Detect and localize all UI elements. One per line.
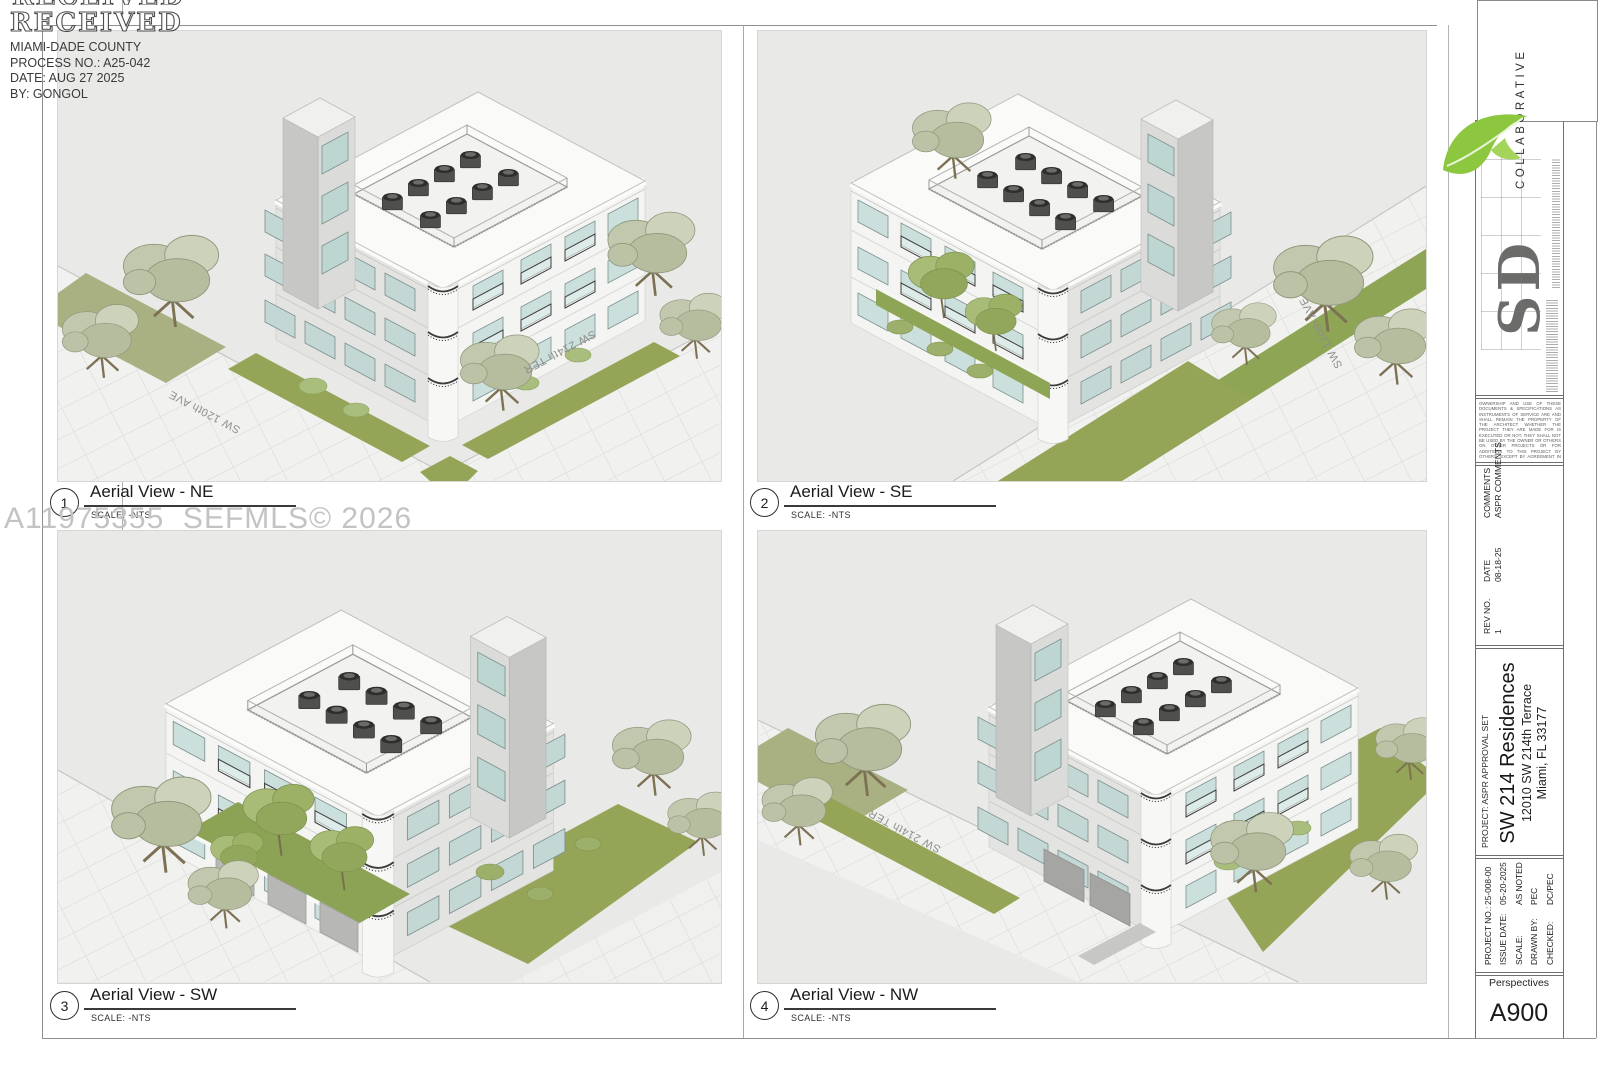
view-number-badge: 4 <box>750 991 779 1020</box>
architect-fine-print <box>1546 300 1558 392</box>
mls-watermark: A11975355 SEFMLS© 2026 <box>4 502 412 536</box>
frame-line-mid <box>743 25 744 1038</box>
info-value: 05-20-2025 <box>1496 859 1511 905</box>
frame-line-top <box>42 25 1437 26</box>
view-scale-text: SCALE: -NTS <box>791 1013 996 1023</box>
stamp-line: BY: GONGOL <box>10 87 183 103</box>
rev-comments-value: ASPR COMMENTS <box>1493 442 1503 518</box>
drawing-sheet: SW 120th AVE SW 214th TER <box>0 0 1600 1066</box>
info-label: PROJECT NO.: <box>1481 905 1496 965</box>
rev-date-header: DATE <box>1482 518 1492 582</box>
received-stamp: RECEIVED MIAMI-DADE COUNTY PROCESS NO.: … <box>10 8 183 102</box>
info-value: DC/PEC <box>1543 859 1558 905</box>
project-set-label: PROJECT: ASPR APPROVAL SET <box>1480 715 1490 848</box>
stamp-line: PROCESS NO.: A25-042 <box>10 56 183 72</box>
view-scale-text: SCALE: -NTS <box>791 510 996 520</box>
view-scale-text: SCALE: -NTS <box>91 1013 296 1023</box>
aerial-view-nw-rendering: SW 214th TER <box>758 531 1426 983</box>
info-label: CHECKED: <box>1543 905 1558 965</box>
frame-line-right <box>1596 0 1597 1038</box>
info-value: PEC <box>1527 859 1542 905</box>
rev-comments-header: COMMENTS <box>1482 442 1492 518</box>
project-address-line1: 12010 SW 214th Terrace <box>1520 650 1535 856</box>
info-value: AS NOTED <box>1512 859 1527 905</box>
view-title-3: 3 Aerial View - SW SCALE: -NTS <box>50 985 296 1023</box>
info-label: ISSUE DATE: <box>1496 905 1511 965</box>
view-title-text: Aerial View - NW <box>784 985 996 1010</box>
view-panel-2: SW 120th AVE <box>757 30 1427 482</box>
info-label: DRAWN BY: <box>1527 905 1542 965</box>
info-label: SCALE: <box>1512 905 1527 965</box>
rev-no-header: REV NO. <box>1482 582 1492 634</box>
aerial-view-se-rendering: SW 120th AVE <box>758 31 1426 481</box>
view-title-text: Aerial View - SW <box>84 985 296 1010</box>
stamp-line: MIAMI-DADE COUNTY <box>10 40 183 56</box>
rev-no-value: 1 <box>1493 582 1503 634</box>
stamp-line: DATE: AUG 27 2025 <box>10 71 183 87</box>
info-value: 25-008-00 <box>1481 859 1496 905</box>
received-stamp-text: RECEIVED <box>10 8 183 38</box>
sheet-number: A900 <box>1475 999 1563 1028</box>
view-title-2: 2 Aerial View - SE SCALE: -NTS <box>750 482 996 520</box>
received-stamp-partial: RECEIVED <box>12 0 185 5</box>
revision-table: REV NO. DATE COMMENTS 1 08-18-25 ASPR CO… <box>1477 467 1561 644</box>
project-block: PROJECT: ASPR APPROVAL SET SW 214 Reside… <box>1477 650 1561 856</box>
view-number-badge: 2 <box>750 488 779 517</box>
project-name: SW 214 Residences <box>1497 650 1520 856</box>
leaf-icon <box>1437 104 1533 190</box>
sheet-info-block: PROJECT NO.: 25-008-00 ISSUE DATE: 05-20… <box>1477 859 1561 971</box>
view-panel-3 <box>57 530 722 984</box>
view-title-text: Aerial View - SE <box>784 482 996 507</box>
frame-line-bottom <box>42 1038 1596 1039</box>
view-title-4: 4 Aerial View - NW SCALE: -NTS <box>750 985 996 1023</box>
view-panel-4: SW 214th TER <box>757 530 1427 984</box>
project-address-line2: Miami, FL 33177 <box>1535 650 1550 856</box>
sheet-title: Perspectives <box>1475 977 1563 989</box>
view-number-badge: 3 <box>50 991 79 1020</box>
rev-date-value: 08-18-25 <box>1493 518 1503 582</box>
logo-fine-print <box>1552 158 1560 288</box>
aerial-view-sw-rendering <box>58 531 721 983</box>
